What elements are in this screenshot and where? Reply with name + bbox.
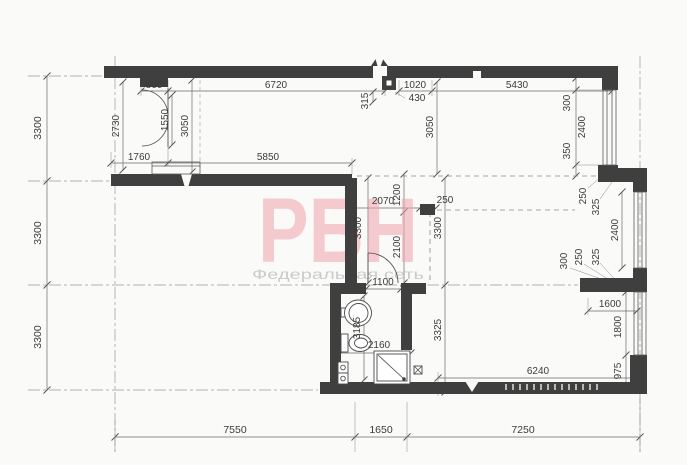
dim-975: 975 — [613, 362, 624, 379]
dim-1760: 1760 — [128, 152, 151, 163]
dim-1800: 1800 — [613, 315, 624, 338]
dim-1600: 1600 — [599, 299, 622, 310]
dim-1200: 1200 — [392, 183, 403, 206]
dim-5430: 5430 — [506, 80, 529, 91]
dim-1020: 1020 — [404, 80, 427, 91]
dim-left-3300-b: 3300 — [32, 221, 44, 245]
dim-430: 430 — [409, 93, 426, 104]
dim-bottom-7250: 7250 — [511, 424, 535, 436]
dim-300-top: 300 — [562, 94, 573, 111]
dim-5850: 5850 — [257, 152, 280, 163]
dim-1550: 1550 — [160, 108, 171, 131]
dim-2160: 2160 — [368, 340, 391, 351]
window-top-right — [603, 90, 616, 165]
dim-250-upper: 250 — [578, 187, 589, 204]
dim-325-upper: 325 — [591, 198, 602, 215]
dim-3185: 3185 — [352, 316, 363, 339]
appliance-boxes — [338, 362, 348, 384]
dim-350: 350 — [562, 142, 573, 159]
dim-bottom-7550: 7550 — [223, 424, 247, 436]
dim-3050-left: 3050 — [180, 114, 191, 137]
floor-drain — [414, 366, 422, 374]
dim-860: 860 — [146, 80, 163, 91]
dim-3050-right: 3050 — [425, 115, 436, 138]
dim-left-3300-a: 3300 — [32, 116, 44, 140]
dim-250-center: 250 — [437, 195, 454, 206]
dim-315: 315 — [360, 92, 371, 109]
dim-325-mid: 325 — [591, 248, 602, 265]
dim-2400-mid: 2400 — [610, 218, 621, 241]
dim-2400-top: 2400 — [577, 115, 588, 138]
floor-plan: РБН Федеральная сеть — [0, 0, 687, 465]
dim-2730: 2730 — [111, 114, 122, 137]
niche-top-left — [152, 162, 200, 174]
dim-3300-center-left: 3300 — [353, 216, 364, 239]
shower-tray — [374, 351, 410, 384]
dim-300-mid: 300 — [559, 252, 570, 269]
dim-left-3300-c: 3300 — [32, 325, 44, 349]
dim-1100: 1100 — [372, 277, 394, 288]
floor-plan-page: РБН Федеральная сеть — [0, 0, 687, 465]
wall-joint-notch — [473, 71, 481, 79]
dim-bottom-1650: 1650 — [369, 424, 393, 436]
dim-2100: 2100 — [392, 235, 403, 258]
dim-3300-center-right: 3300 — [433, 216, 444, 239]
dim-3325: 3325 — [433, 318, 444, 341]
dim-6720: 6720 — [265, 80, 288, 91]
dim-6240: 6240 — [527, 366, 550, 377]
dim-250-mid: 250 — [574, 248, 585, 265]
